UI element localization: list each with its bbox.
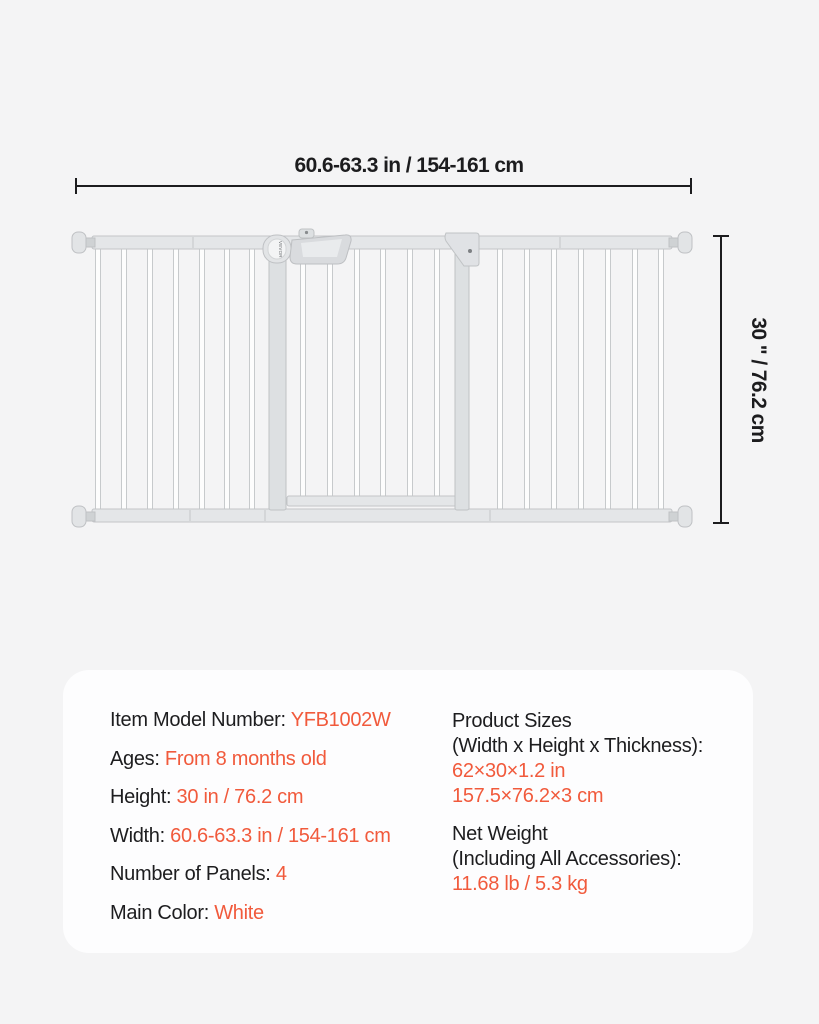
gate-bars-door <box>301 246 440 498</box>
spec-label: Item Model Number: <box>110 709 286 731</box>
wall-mount-knob-bottom-right <box>669 506 692 527</box>
gate-top-rail <box>92 236 672 249</box>
gate-bars-right <box>498 246 664 512</box>
height-dimension-label: 30 " / 76.2 cm <box>747 317 770 442</box>
spec-card-right-column: Product Sizes (Width x Height x Thicknes… <box>452 709 703 897</box>
spec-card: Item Model Number: YFB1002W Ages: From 8… <box>63 670 753 953</box>
spec-label: Number of Panels: <box>110 863 271 885</box>
hinge-post <box>269 254 286 510</box>
spec-value: 4 <box>276 863 287 885</box>
spec-row-model: Item Model Number: YFB1002W <box>110 701 391 740</box>
height-dimension-line <box>713 236 729 523</box>
spec-group-title: Net Weight <box>452 822 703 847</box>
width-dimension-line <box>76 178 691 194</box>
baby-gate-illustration: VEVOR <box>72 229 692 527</box>
door-handle <box>290 229 351 264</box>
spec-value: From 8 months old <box>165 748 327 770</box>
spec-label: Main Color: <box>110 902 209 924</box>
spec-value: YFB1002W <box>291 709 391 731</box>
spec-group-title2: (Width x Height x Thickness): <box>452 734 703 759</box>
spec-value: 30 in / 76.2 cm <box>177 786 304 808</box>
spec-group-value2: 157.5×76.2×3 cm <box>452 784 703 809</box>
wall-mount-knob-top-left <box>72 232 95 253</box>
gate-bars-left <box>96 246 255 512</box>
latch-post <box>455 246 469 510</box>
spec-row-color: Main Color: White <box>110 894 391 933</box>
spec-group-net-weight: Net Weight (Including All Accessories): … <box>452 822 703 897</box>
spec-group-title2: (Including All Accessories): <box>452 847 703 872</box>
brand-mark: VEVOR <box>278 241 283 258</box>
spec-label: Width: <box>110 825 165 847</box>
gate-bottom-rail <box>92 509 672 522</box>
product-infographic: 60.6-63.3 in / 154-161 cm 30 " / 76.2 cm <box>0 0 819 1024</box>
spec-label: Ages: <box>110 748 160 770</box>
gate-diagram: 60.6-63.3 in / 154-161 cm 30 " / 76.2 cm <box>0 0 819 660</box>
latch-pin <box>468 249 472 253</box>
spec-row-height: Height: 30 in / 76.2 cm <box>110 778 391 817</box>
spec-group-value: 11.68 lb / 5.3 kg <box>452 872 703 897</box>
rail-seams <box>190 237 560 521</box>
spec-row-width: Width: 60.6-63.3 in / 154-161 cm <box>110 817 391 856</box>
spec-value: 60.6-63.3 in / 154-161 cm <box>170 825 390 847</box>
spec-label: Height: <box>110 786 171 808</box>
spec-row-ages: Ages: From 8 months old <box>110 740 391 779</box>
spec-group-title: Product Sizes <box>452 709 703 734</box>
spec-group-product-sizes: Product Sizes (Width x Height x Thicknes… <box>452 709 703 809</box>
handle-button <box>305 231 308 234</box>
wall-mount-knob-top-right <box>669 232 692 253</box>
spec-value: White <box>214 902 264 924</box>
width-dimension-label: 60.6-63.3 in / 154-161 cm <box>295 154 524 177</box>
door-bottom-rail <box>287 496 465 506</box>
wall-mount-knob-bottom-left <box>72 506 95 527</box>
spec-group-value: 62×30×1.2 in <box>452 759 703 784</box>
spec-row-panels: Number of Panels: 4 <box>110 855 391 894</box>
spec-card-left-column: Item Model Number: YFB1002W Ages: From 8… <box>110 701 391 932</box>
